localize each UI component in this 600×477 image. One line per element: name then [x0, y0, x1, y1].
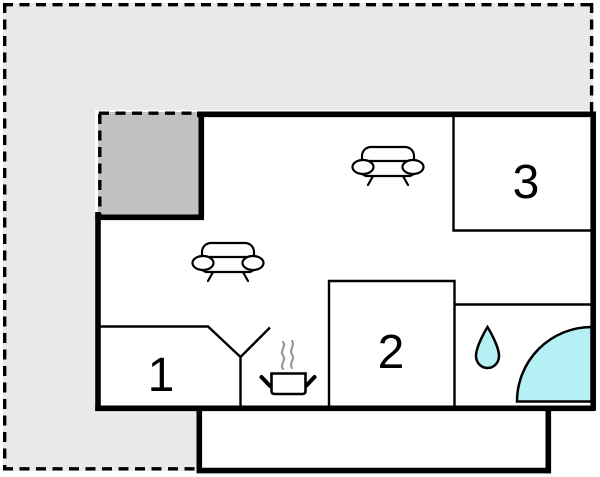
annex-area	[98, 112, 202, 218]
pot-body	[272, 374, 306, 395]
room-1-label: 1	[148, 349, 175, 402]
room-2-label: 2	[378, 326, 405, 379]
floor-plan-canvas: 1 2 3	[0, 0, 600, 477]
porch-interior	[197, 406, 551, 473]
room-3-label: 3	[513, 156, 540, 209]
